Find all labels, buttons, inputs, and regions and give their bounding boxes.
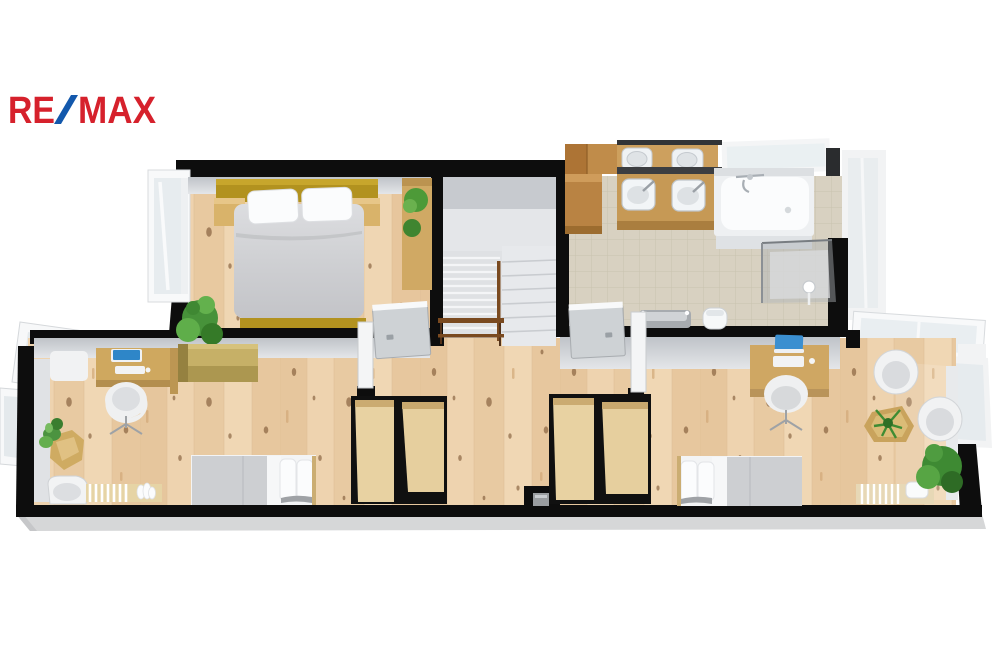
svg-text:RE: RE <box>8 90 55 132</box>
svg-text:MAX: MAX <box>78 90 157 132</box>
